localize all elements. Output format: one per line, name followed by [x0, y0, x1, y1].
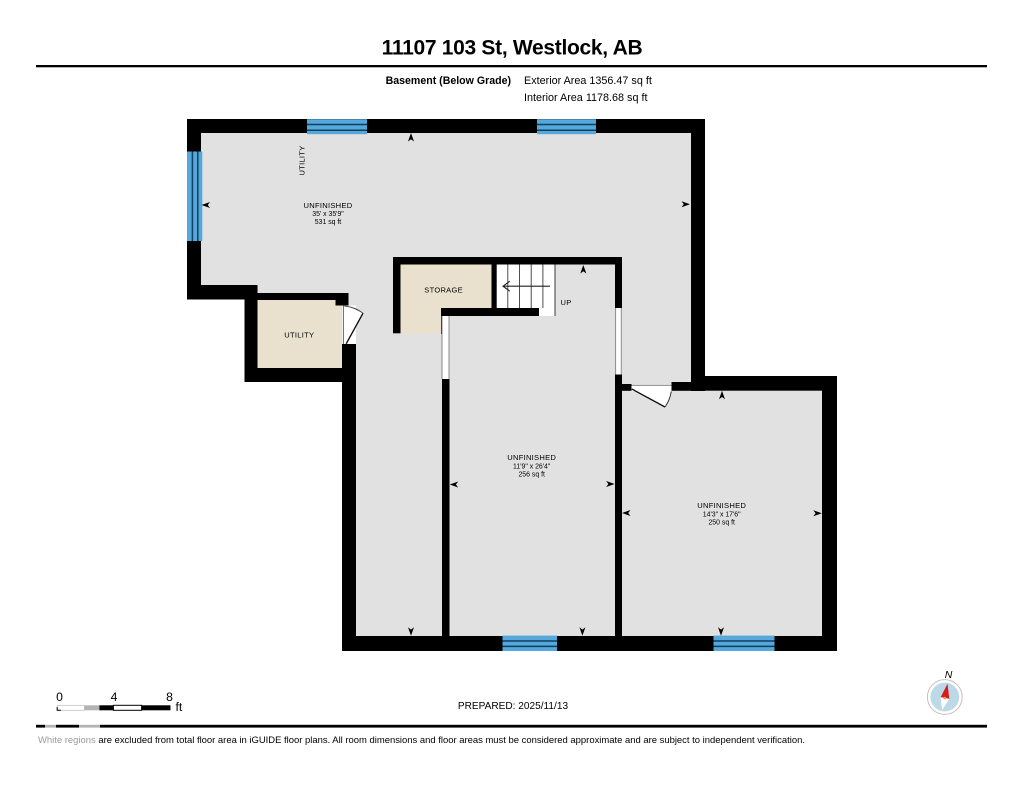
svg-text:ft: ft — [176, 700, 183, 714]
svg-text:STORAGE: STORAGE — [424, 286, 463, 295]
svg-text:0: 0 — [56, 690, 63, 704]
svg-text:14'3" x 17'6": 14'3" x 17'6" — [703, 511, 741, 518]
svg-text:UTILITY: UTILITY — [284, 331, 314, 340]
svg-text:PREPARED: 2025/11/13: PREPARED: 2025/11/13 — [458, 701, 569, 712]
svg-text:Exterior Area 1356.47 sq ft: Exterior Area 1356.47 sq ft — [524, 75, 652, 87]
svg-text:4: 4 — [111, 690, 118, 704]
svg-text:UNFINISHED: UNFINISHED — [697, 501, 746, 510]
svg-text:UTILITY: UTILITY — [298, 145, 307, 175]
svg-text:UNFINISHED: UNFINISHED — [507, 453, 556, 462]
svg-text:256 sq ft: 256 sq ft — [518, 472, 545, 479]
svg-text:UNFINISHED: UNFINISHED — [304, 201, 353, 210]
svg-text:UP: UP — [560, 298, 571, 307]
svg-text:35' x 35'9": 35' x 35'9" — [312, 211, 344, 218]
svg-text:11'9" x 26'4": 11'9" x 26'4" — [513, 463, 551, 470]
svg-text:8: 8 — [166, 690, 173, 704]
svg-text:Interior Area 1178.68 sq ft: Interior Area 1178.68 sq ft — [524, 92, 647, 104]
svg-text:Basement (Below Grade): Basement (Below Grade) — [386, 75, 511, 87]
svg-text:531 sq ft: 531 sq ft — [315, 219, 342, 226]
svg-text:250 sq ft: 250 sq ft — [708, 520, 735, 527]
svg-text:White regions are excluded fro: White regions are excluded from total fl… — [38, 735, 805, 746]
svg-text:11107 103 St, Westlock, AB: 11107 103 St, Westlock, AB — [382, 37, 643, 60]
